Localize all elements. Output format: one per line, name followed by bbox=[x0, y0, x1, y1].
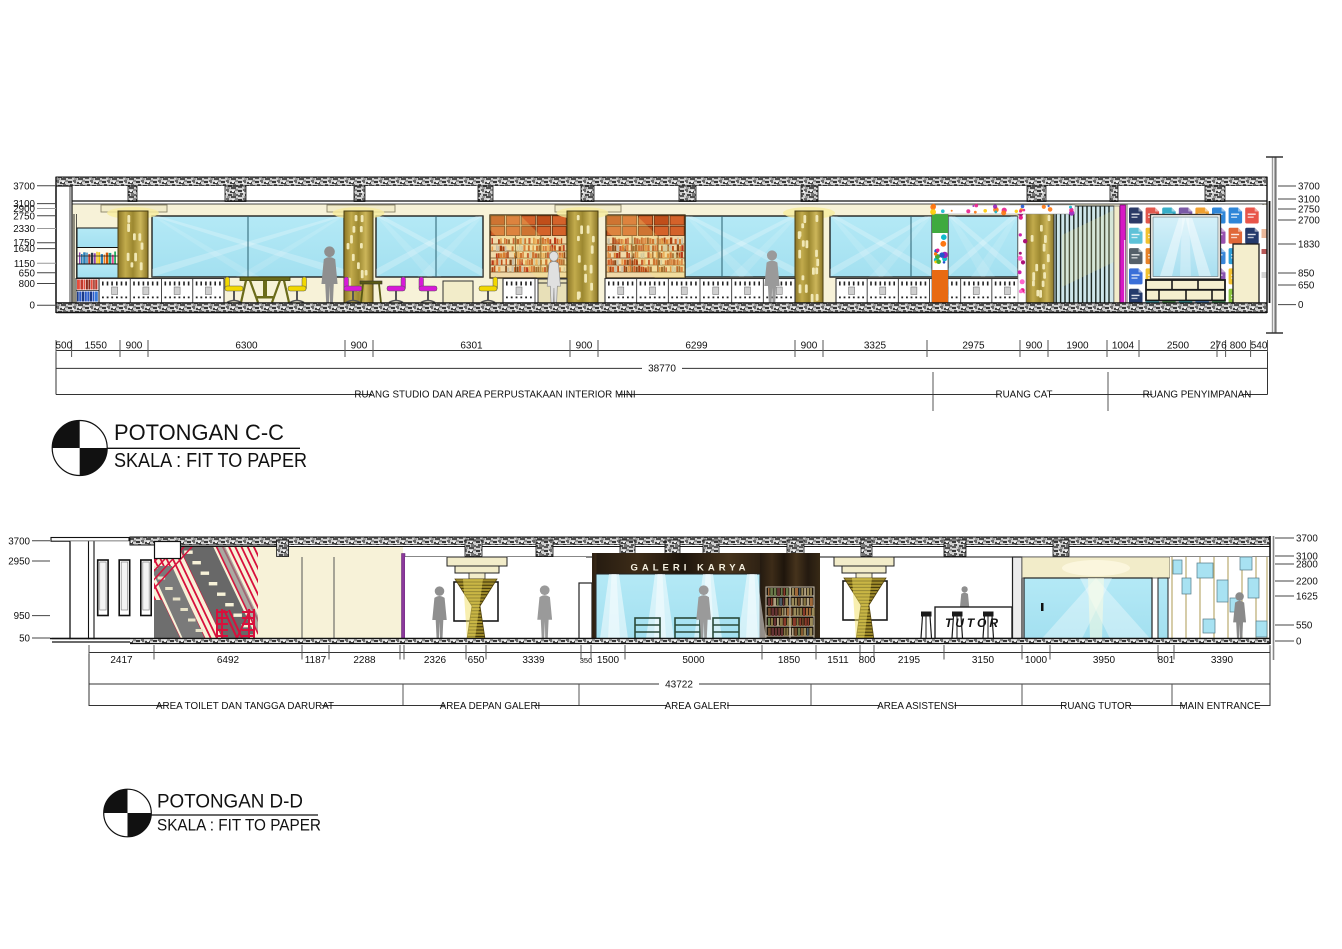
svg-text:6300: 6300 bbox=[235, 341, 258, 352]
svg-text:540: 540 bbox=[1251, 341, 1268, 352]
svg-text:276: 276 bbox=[1210, 341, 1227, 352]
svg-text:800: 800 bbox=[859, 655, 876, 666]
svg-text:2950: 2950 bbox=[8, 557, 30, 568]
svg-text:2417: 2417 bbox=[110, 655, 133, 666]
svg-text:1550: 1550 bbox=[85, 341, 108, 352]
svg-text:3700: 3700 bbox=[1296, 534, 1318, 545]
svg-text:500: 500 bbox=[55, 341, 72, 352]
svg-text:900: 900 bbox=[1026, 341, 1043, 352]
svg-text:SKALA : FIT TO PAPER: SKALA : FIT TO PAPER bbox=[157, 816, 321, 835]
svg-text:AREA DEPAN GALERI: AREA DEPAN GALERI bbox=[440, 701, 541, 712]
svg-text:1900: 1900 bbox=[1066, 341, 1089, 352]
svg-text:900: 900 bbox=[126, 341, 143, 352]
svg-text:2975: 2975 bbox=[962, 341, 985, 352]
svg-text:AREA ASISTENSI: AREA ASISTENSI bbox=[877, 701, 957, 712]
svg-text:2195: 2195 bbox=[898, 655, 921, 666]
svg-text:43722: 43722 bbox=[665, 680, 693, 691]
svg-text:2326: 2326 bbox=[424, 655, 447, 666]
svg-text:550: 550 bbox=[1296, 621, 1313, 632]
svg-text:3325: 3325 bbox=[864, 341, 887, 352]
svg-text:850: 850 bbox=[1298, 269, 1315, 280]
svg-text:0: 0 bbox=[30, 301, 36, 312]
svg-text:1000: 1000 bbox=[1025, 655, 1048, 666]
svg-text:2330: 2330 bbox=[13, 224, 35, 235]
svg-text:1830: 1830 bbox=[1298, 240, 1320, 251]
svg-text:650: 650 bbox=[468, 655, 485, 666]
svg-text:0: 0 bbox=[1298, 300, 1304, 311]
svg-text:0: 0 bbox=[1296, 637, 1302, 648]
svg-text:1500: 1500 bbox=[597, 655, 620, 666]
svg-text:1850: 1850 bbox=[778, 655, 801, 666]
svg-text:3700: 3700 bbox=[8, 536, 30, 547]
svg-text:650: 650 bbox=[19, 268, 36, 279]
svg-text:2750: 2750 bbox=[13, 211, 35, 222]
svg-text:1625: 1625 bbox=[1296, 592, 1318, 603]
svg-text:2700: 2700 bbox=[1298, 216, 1320, 227]
svg-text:801: 801 bbox=[1158, 655, 1175, 666]
svg-text:RUANG TUTOR: RUANG TUTOR bbox=[1060, 701, 1132, 712]
svg-text:RUANG CAT: RUANG CAT bbox=[996, 390, 1053, 401]
svg-text:6299: 6299 bbox=[685, 341, 708, 352]
svg-text:POTONGAN C-C: POTONGAN C-C bbox=[114, 420, 284, 445]
svg-text:2288: 2288 bbox=[353, 655, 376, 666]
svg-text:1187: 1187 bbox=[305, 655, 327, 666]
svg-text:3150: 3150 bbox=[972, 655, 995, 666]
svg-text:MAIN ENTRANCE: MAIN ENTRANCE bbox=[1179, 701, 1261, 712]
svg-text:650: 650 bbox=[1298, 281, 1315, 292]
svg-text:3700: 3700 bbox=[13, 181, 35, 192]
svg-text:2200: 2200 bbox=[1296, 577, 1318, 588]
svg-text:3700: 3700 bbox=[1298, 182, 1320, 193]
svg-text:900: 900 bbox=[351, 341, 368, 352]
svg-text:1004: 1004 bbox=[1112, 341, 1135, 352]
svg-text:AREA TOILET DAN TANGGA DARURAT: AREA TOILET DAN TANGGA DARURAT bbox=[156, 701, 334, 712]
svg-text:3390: 3390 bbox=[1211, 655, 1234, 666]
svg-text:350: 350 bbox=[580, 656, 593, 665]
svg-text:50: 50 bbox=[19, 634, 30, 645]
svg-text:5000: 5000 bbox=[682, 655, 705, 666]
svg-text:3339: 3339 bbox=[522, 655, 545, 666]
svg-text:6492: 6492 bbox=[217, 655, 240, 666]
svg-text:3950: 3950 bbox=[1093, 655, 1116, 666]
svg-text:800: 800 bbox=[1230, 341, 1247, 352]
svg-text:2750: 2750 bbox=[1298, 205, 1320, 216]
svg-text:900: 900 bbox=[801, 341, 818, 352]
svg-text:6301: 6301 bbox=[460, 341, 483, 352]
svg-text:2500: 2500 bbox=[1167, 341, 1190, 352]
svg-text:RUANG STUDIO DAN AREA PERPUSTA: RUANG STUDIO DAN AREA PERPUSTAKAAN INTER… bbox=[354, 390, 635, 401]
svg-text:SKALA : FIT TO PAPER: SKALA : FIT TO PAPER bbox=[114, 450, 307, 472]
svg-text:POTONGAN D-D: POTONGAN D-D bbox=[157, 792, 303, 813]
svg-text:RUANG PENYIMPANAN: RUANG PENYIMPANAN bbox=[1143, 390, 1252, 401]
svg-text:1640: 1640 bbox=[13, 244, 35, 255]
svg-text:AREA GALERI: AREA GALERI bbox=[665, 701, 730, 712]
svg-text:1511: 1511 bbox=[827, 655, 849, 666]
svg-text:900: 900 bbox=[576, 341, 593, 352]
svg-text:800: 800 bbox=[19, 279, 36, 290]
svg-text:38770: 38770 bbox=[648, 364, 676, 375]
svg-text:2800: 2800 bbox=[1296, 560, 1318, 571]
svg-text:950: 950 bbox=[14, 611, 31, 622]
svg-text:GALERI KARYA: GALERI KARYA bbox=[630, 563, 749, 574]
